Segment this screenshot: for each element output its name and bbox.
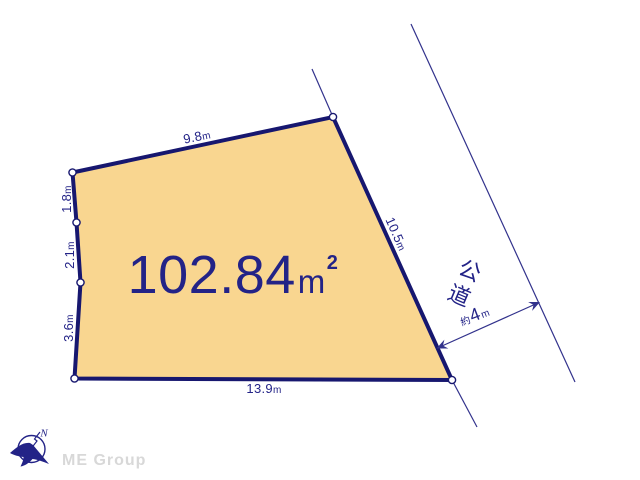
vertex-dot <box>69 169 76 176</box>
vertex-dot <box>73 219 80 226</box>
dimension-unit: m <box>273 385 282 396</box>
dimension-value: 13.9 <box>246 381 273 396</box>
area-label: 102.84m2 <box>128 248 339 302</box>
dimension-label-left-middle: 2.1m <box>63 241 77 269</box>
road-boundary-line <box>411 24 575 382</box>
dimension-label-left-lower: 3.6m <box>62 314 76 342</box>
dimension-value: 1.8 <box>59 194 74 213</box>
boundary-extension-top <box>312 69 333 117</box>
boundary-extension-bottom <box>452 380 477 427</box>
dimension-label-left-upper: 1.8m <box>60 185 74 213</box>
vertex-dot <box>329 113 336 120</box>
compass-north-label: N <box>40 429 47 440</box>
dimension-value: 3.6 <box>61 323 76 342</box>
brand-logo-text: ME Group <box>62 453 146 469</box>
dimension-label-bottom: 13.9m <box>246 382 281 396</box>
vertex-dot <box>71 375 78 382</box>
vertex-dot <box>77 279 84 286</box>
vertex-dot <box>448 376 455 383</box>
dimension-unit: m <box>63 185 74 194</box>
area-superscript: 2 <box>327 252 339 274</box>
diagram-canvas <box>0 0 640 480</box>
dimension-value: 2.1 <box>62 250 77 269</box>
dimension-unit: m <box>66 241 77 250</box>
area-unit: m <box>298 263 326 300</box>
land-plot-diagram: 9.8m 1.8m 2.1m 3.6m 10.5m 13.9m 102.84m2… <box>0 0 640 480</box>
area-value: 102.84 <box>128 245 296 305</box>
dimension-unit: m <box>65 314 76 323</box>
